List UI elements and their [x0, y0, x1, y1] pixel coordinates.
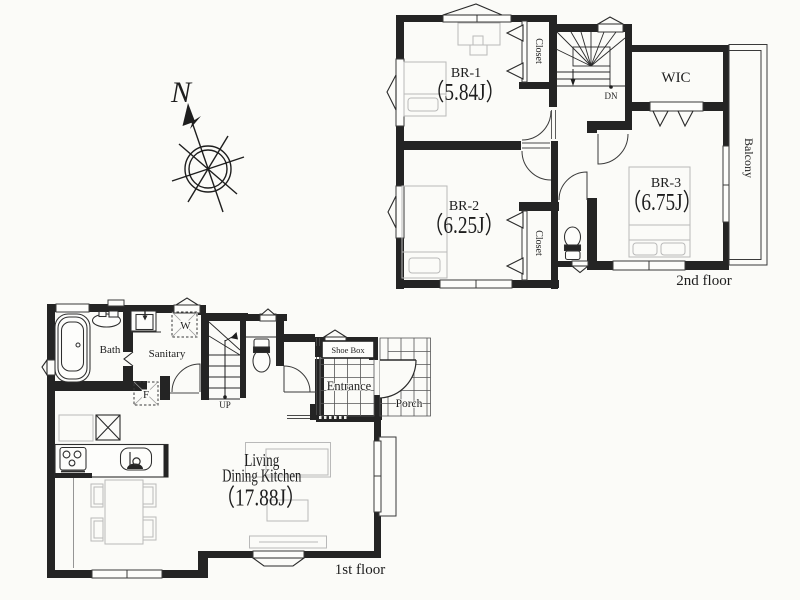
svg-text:UP: UP [219, 400, 231, 410]
svg-text:Porch: Porch [396, 398, 423, 410]
svg-text:Shoe Box: Shoe Box [331, 345, 365, 355]
svg-text:1st floor: 1st floor [335, 562, 385, 578]
svg-text:（17.88J）: （17.88J） [216, 485, 306, 511]
svg-text:Bath: Bath [100, 344, 121, 356]
svg-text:Closet: Closet [533, 38, 544, 64]
svg-text:Entrance: Entrance [327, 379, 372, 393]
svg-text:N: N [170, 76, 193, 109]
svg-text:（6.75J）: （6.75J） [622, 189, 702, 215]
svg-text:（6.25J）: （6.25J） [424, 212, 504, 238]
svg-text:WIC: WIC [661, 70, 690, 86]
svg-text:F: F [143, 389, 149, 401]
svg-text:Sanitary: Sanitary [149, 348, 186, 360]
svg-text:DN: DN [605, 91, 618, 101]
svg-text:W: W [180, 320, 191, 332]
svg-text:Dining Kitchen: Dining Kitchen [222, 467, 301, 486]
svg-text:（5.84J）: （5.84J） [425, 79, 505, 105]
svg-text:2nd floor: 2nd floor [676, 273, 731, 289]
svg-text:Balcony: Balcony [742, 138, 756, 178]
svg-text:Closet: Closet [533, 230, 544, 256]
